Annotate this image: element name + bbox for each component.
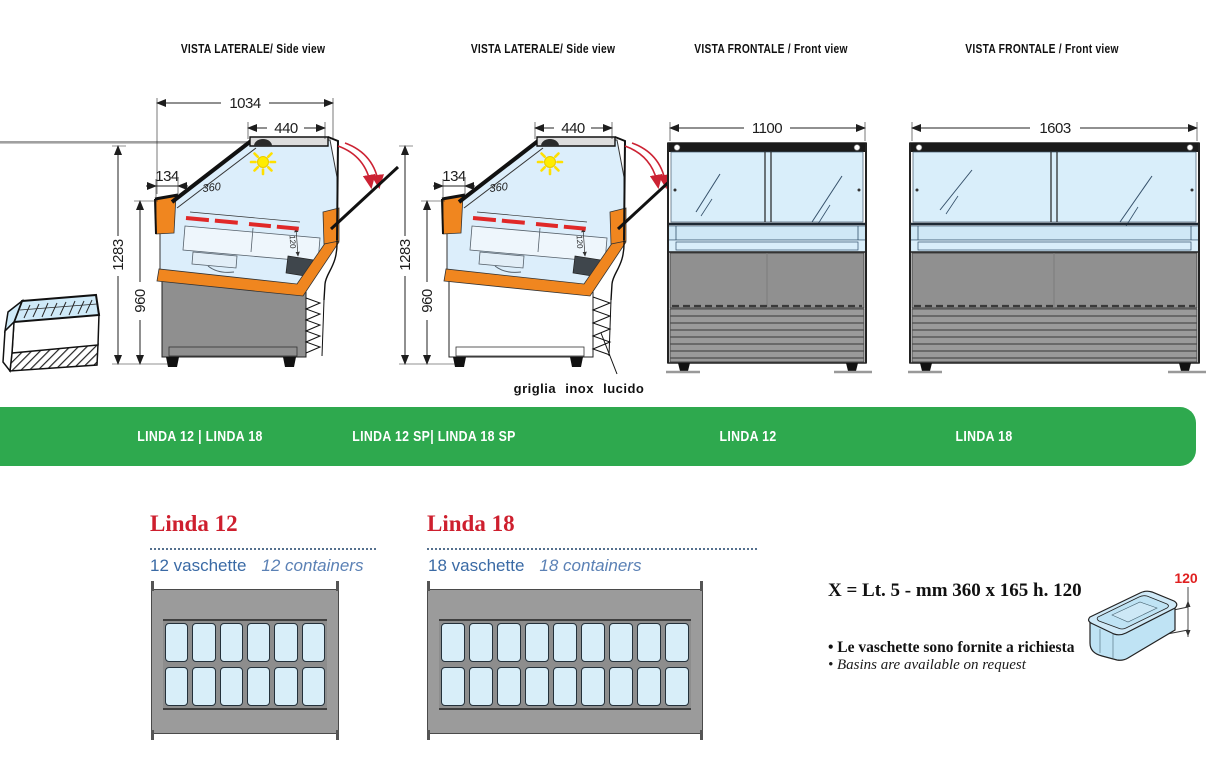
dim-lid: 440 (561, 120, 585, 137)
container-basin (609, 667, 633, 706)
container-basin (274, 623, 297, 662)
product-subtitle: 12 vaschette12 containers (150, 556, 363, 576)
product-name-linda-18: Linda 18 (427, 511, 515, 537)
containers-count-en: 12 containers (261, 556, 363, 575)
foot (570, 357, 583, 367)
dim-display-depth: 360 (202, 181, 222, 195)
banner-label: LINDA 12 (714, 407, 781, 466)
container-basin (497, 667, 521, 706)
datasheet-page: VISTA LATERALE/ Side view VISTA LATERALE… (0, 0, 1225, 767)
open-glass-arrow (338, 146, 371, 186)
dotted-rule (150, 548, 376, 550)
banner-label: LINDA 12 SP| LINDA 18 SP (338, 407, 530, 466)
dim-total-height: 1283 (110, 239, 127, 271)
drawing-side-view-2: 120 (397, 119, 685, 374)
container-basin (497, 623, 521, 662)
note-italian: • Le vaschette sono fornite a richiesta (828, 639, 1075, 657)
opened-glass-line (331, 167, 398, 229)
front-glass (913, 152, 1196, 222)
container-basin (469, 623, 493, 662)
dim-basin-height: 120 (1174, 570, 1198, 586)
container-basin (581, 623, 605, 662)
vent-grille (306, 298, 320, 353)
front-glass (671, 152, 863, 222)
dim-lid: 440 (274, 120, 298, 137)
container-basin (302, 623, 325, 662)
foot (846, 363, 858, 371)
basin-spec: X = Lt. 5 - mm 360 x 165 h. 120 (828, 580, 1082, 602)
grille-note: griglia inox lucido (508, 381, 650, 396)
container-basin (220, 623, 243, 662)
containers-count-it: 12 vaschette (150, 556, 246, 575)
foot (283, 357, 296, 367)
vent-slats (670, 309, 864, 362)
container-basin (441, 667, 465, 706)
dotted-rule (427, 548, 757, 550)
container-basin (469, 667, 493, 706)
containers-count-it: 18 vaschette (428, 556, 524, 575)
container-basin (665, 667, 689, 706)
model-banner: LINDA 12 | LINDA 18 LINDA 12 SP| LINDA 1… (0, 407, 1196, 466)
decorative-line (0, 141, 247, 144)
container-basin (247, 667, 270, 706)
container-basin (553, 623, 577, 662)
dim-counter-height: 960 (419, 289, 436, 313)
product-thumbnail (3, 295, 99, 371)
product-subtitle: 18 vaschette18 containers (428, 556, 641, 576)
dim-depth: 1034 (229, 95, 261, 112)
container-basin (165, 623, 188, 662)
dim-width: 1603 (1039, 120, 1071, 137)
dim-inner-height: 120 (575, 235, 585, 249)
note-english: • Basins are available on request (828, 657, 1026, 674)
dim-counter-height: 960 (132, 289, 149, 313)
linda-18-topview (427, 589, 703, 734)
container-basin (609, 623, 633, 662)
vent-slats (912, 309, 1197, 362)
container-grid (439, 619, 691, 710)
container-basin (525, 623, 549, 662)
grille-leader-line (601, 333, 617, 374)
container-basin (247, 623, 270, 662)
container-basin (192, 667, 215, 706)
basin-drawing: 120 (1080, 553, 1220, 693)
container-basin (525, 667, 549, 706)
dim-inner-height: 120 (288, 235, 298, 249)
container-basin (441, 623, 465, 662)
open-glass-arrow (625, 146, 658, 186)
container-basin (637, 667, 661, 706)
drawing-side-view-1: 120 (110, 94, 398, 367)
dim-ledge: 134 (155, 168, 179, 185)
container-basin (637, 623, 661, 662)
foot (453, 357, 466, 367)
dim-ledge: 134 (442, 168, 466, 185)
drawing-front-view-2: 1603 (908, 119, 1206, 372)
container-grid (163, 619, 327, 710)
container-basin (302, 667, 325, 706)
technical-drawings: 120 (0, 0, 1225, 405)
linda-12-topview (151, 589, 339, 734)
banner-label: LINDA 12 | LINDA 18 (126, 407, 274, 466)
drawing-front-view-1: 1100 (666, 119, 872, 372)
container-basin (581, 667, 605, 706)
foot (678, 363, 690, 371)
container-basin (553, 667, 577, 706)
foot (166, 357, 179, 367)
dim-width: 1100 (752, 120, 782, 137)
container-basin (274, 667, 297, 706)
dim-total-height: 1283 (397, 239, 414, 271)
foot (1179, 363, 1191, 371)
containers-count-en: 18 containers (539, 556, 641, 575)
inox-grille (593, 297, 610, 355)
container-basin (665, 623, 689, 662)
banner-label: LINDA 18 (950, 407, 1017, 466)
product-name-linda-12: Linda 12 (150, 511, 238, 537)
container-basin (165, 667, 188, 706)
dim-display-depth: 360 (489, 181, 509, 195)
container-basin (220, 667, 243, 706)
container-basin (192, 623, 215, 662)
foot (920, 363, 932, 371)
